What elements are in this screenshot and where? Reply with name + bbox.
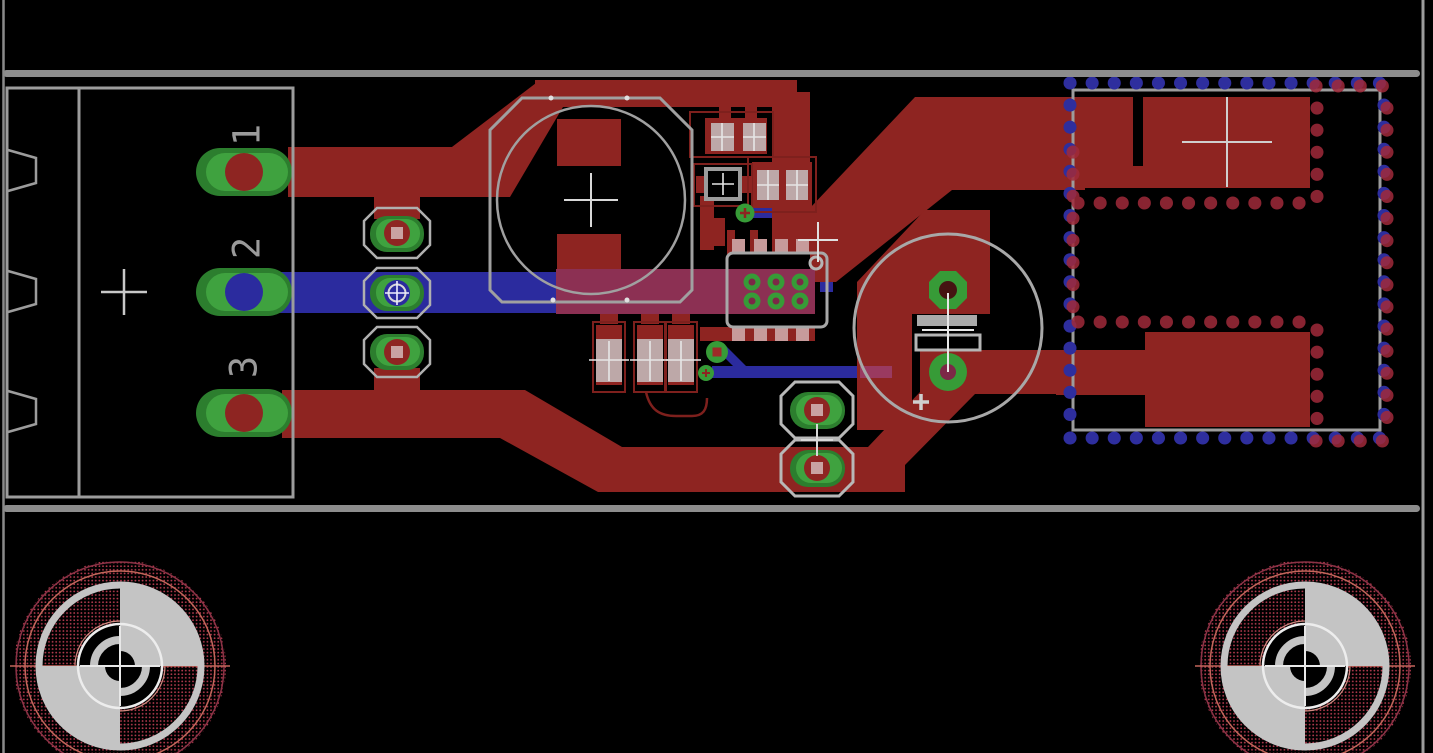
cap-bottom-pad[interactable] <box>557 234 621 272</box>
connector-pad-2[interactable] <box>196 268 292 316</box>
connector-origin-cross-icon <box>101 269 147 315</box>
resistor-row[interactable] <box>589 322 707 416</box>
resistor-1[interactable] <box>589 322 629 392</box>
pin-label-2: 2 <box>226 237 269 259</box>
trace-pin1[interactable] <box>288 147 458 197</box>
connector-pad-1[interactable] <box>196 148 292 196</box>
board-edge-bottom <box>3 505 1420 512</box>
connector-pad-3[interactable] <box>196 389 292 437</box>
pin-label-3: 3 <box>223 356 266 378</box>
fiducial-bottom-left[interactable] <box>10 560 230 753</box>
board-edge-top <box>3 70 1420 77</box>
pad-column[interactable] <box>370 216 424 370</box>
pcb-canvas[interactable]: 1 2 3 + <box>0 0 1433 753</box>
silk-curve <box>646 392 707 416</box>
trace-to-electrolytic[interactable] <box>712 366 862 378</box>
fiducial-bottom-right[interactable] <box>1195 560 1415 753</box>
pin-label-1: 1 <box>226 124 269 146</box>
capacitor-origin-cross-icon <box>564 173 618 227</box>
trace-pin3[interactable] <box>282 390 845 492</box>
module-copper-bottom[interactable] <box>1145 332 1310 427</box>
cap-top-pad[interactable] <box>557 119 621 166</box>
